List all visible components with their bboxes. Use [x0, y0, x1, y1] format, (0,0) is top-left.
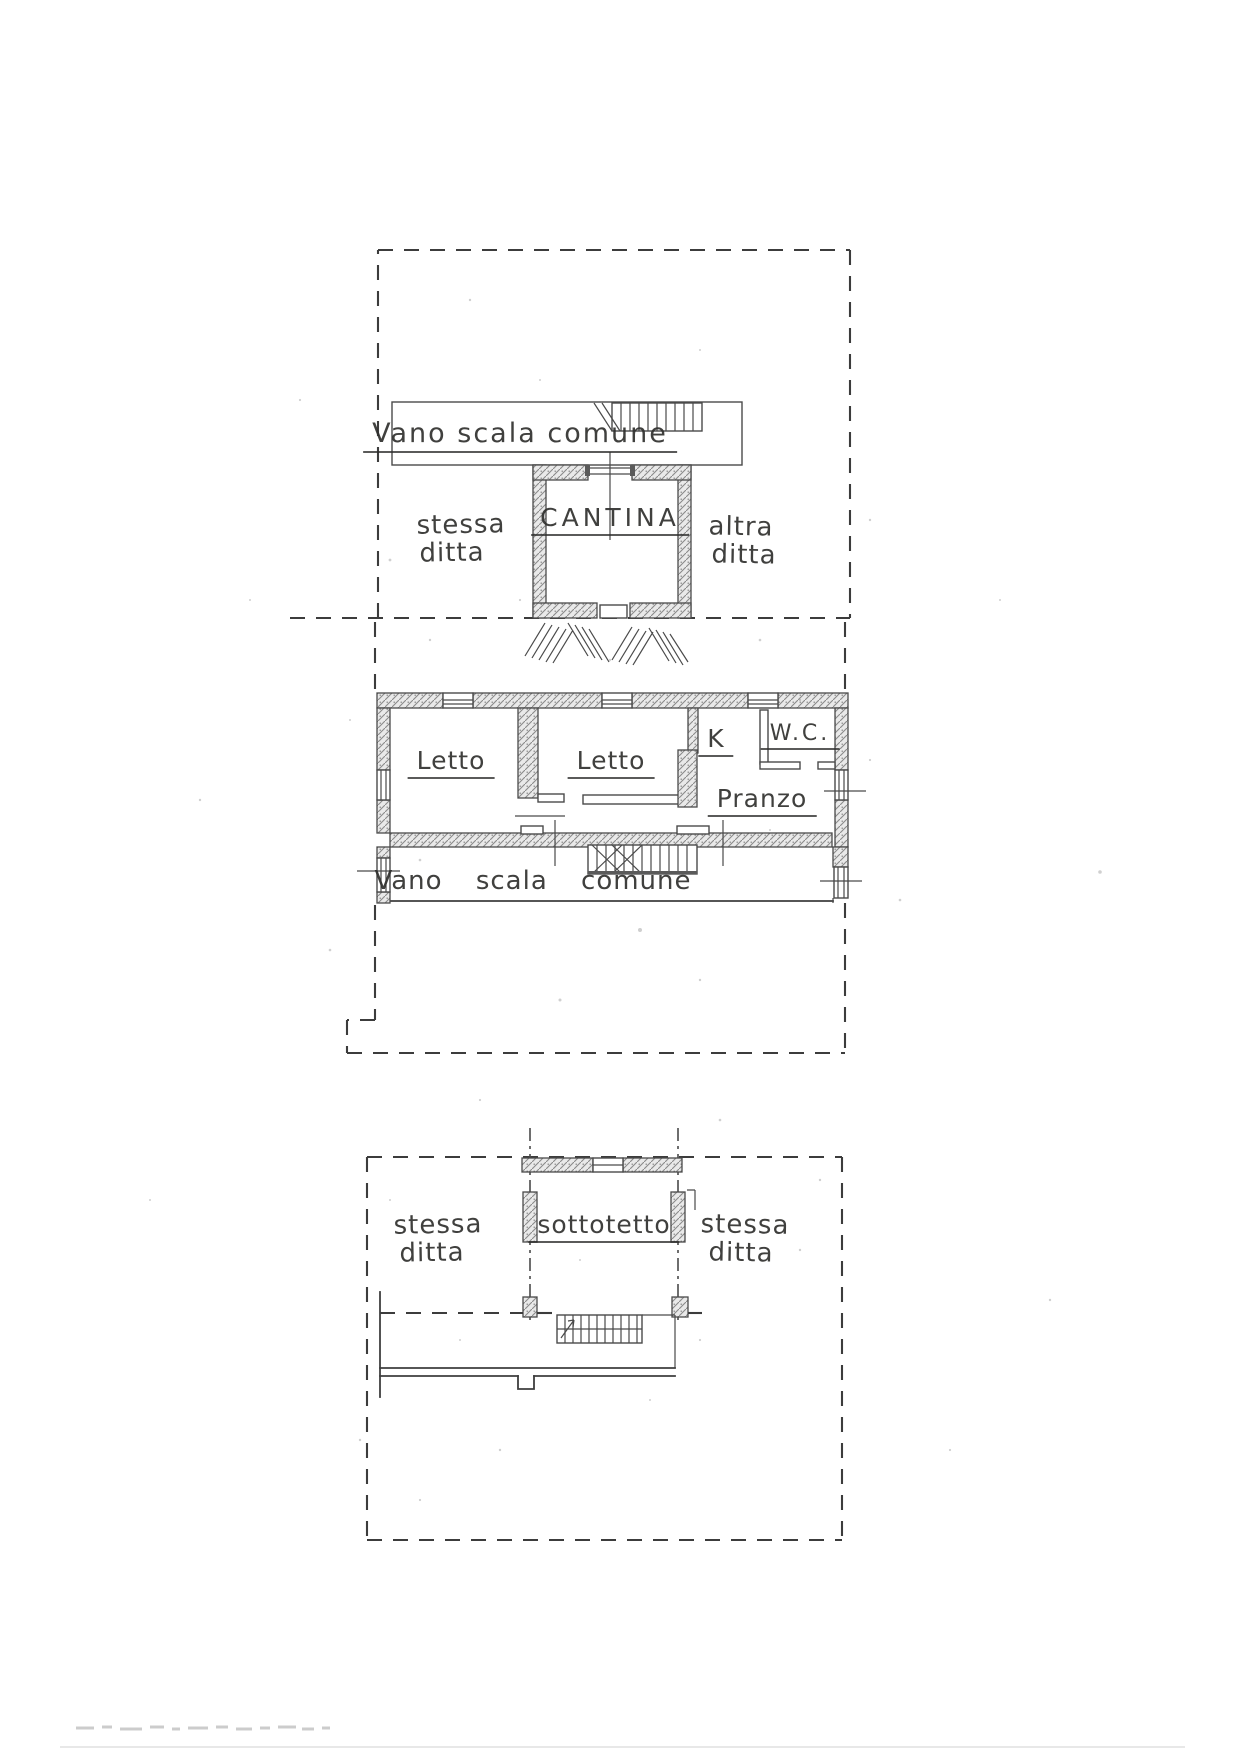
attic-left-owner-line2: ditta	[399, 1239, 465, 1267]
first-floor-dining-label: Pranzo	[708, 786, 817, 817]
basement-left-owner-line1: stessa	[416, 511, 505, 540]
basement-room-label: CANTINA	[531, 505, 689, 536]
first-floor-wc-label: W.C.	[761, 722, 840, 750]
first-floor-bedroom-left-label: Letto	[408, 748, 495, 779]
first-floor-stairwell-label: Vano scala comune	[374, 868, 691, 895]
basement-stairwell-label: Vano scala comune	[363, 420, 677, 453]
basement-right-owner-line2: ditta	[711, 541, 777, 569]
first-floor-kitchen-label: K	[698, 726, 733, 757]
attic-plan-drawing	[367, 1128, 842, 1540]
attic-room-label: sottotetto	[528, 1212, 679, 1243]
basement-right-owner-line1: altra	[708, 513, 773, 541]
basement-plan-drawing	[290, 250, 850, 665]
scanned-floorplan-page: Vano scala comune CANTINA stessa ditta a…	[0, 0, 1240, 1754]
basement-left-owner-line2: ditta	[419, 539, 485, 567]
footer-scan-smudge	[60, 1727, 1185, 1747]
attic-right-owner-line2: ditta	[708, 1239, 774, 1267]
attic-right-owner-line1: stessa	[700, 1211, 789, 1240]
first-floor-plan-drawing	[347, 622, 866, 1053]
attic-left-owner-line1: stessa	[393, 1211, 482, 1240]
first-floor-bedroom-right-label: Letto	[568, 748, 655, 779]
